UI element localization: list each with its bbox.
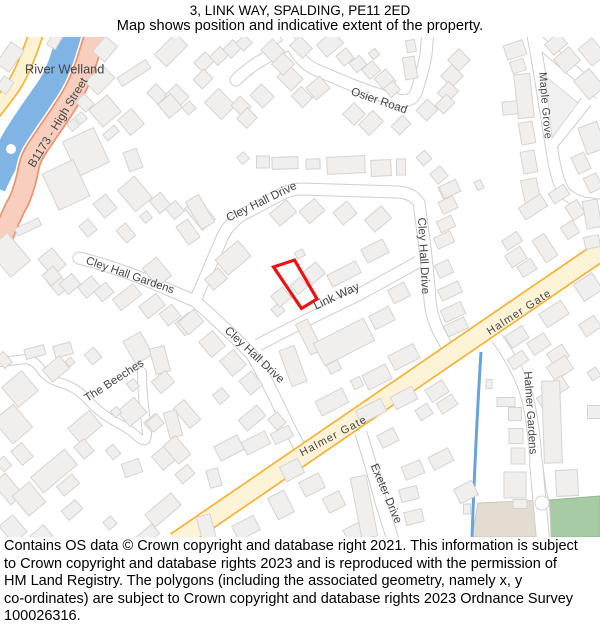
svg-text:River Welland: River Welland	[25, 62, 104, 77]
